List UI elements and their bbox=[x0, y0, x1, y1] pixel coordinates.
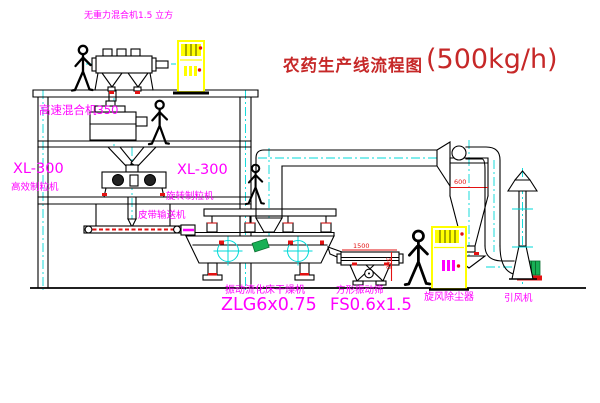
worker-figure-1 bbox=[72, 46, 93, 91]
title-capacity: (500kg/h) bbox=[426, 44, 558, 75]
sieve-length-dimension: 1500 bbox=[353, 243, 370, 250]
high-speed-mixer-label: 高速混合机350 bbox=[39, 105, 118, 117]
granulator bbox=[102, 172, 166, 197]
worker-figure-3 bbox=[246, 165, 264, 204]
diagram-title: 农药生产线流程图 (500kg/h) bbox=[283, 44, 558, 76]
square-sieve bbox=[337, 250, 403, 285]
title-text: 农药生产线流程图 bbox=[283, 52, 423, 76]
belt-conveyor-label: 皮带输送机 bbox=[138, 211, 186, 221]
control-cabinet-upper bbox=[173, 41, 209, 93]
gravity-free-mixer-label: 无重力混合机1.5 立方 bbox=[84, 12, 173, 21]
granulator-lower-model-label: XL-300 bbox=[177, 163, 228, 178]
worker-figure-2 bbox=[149, 101, 169, 144]
worker-figure-4 bbox=[405, 231, 430, 285]
dryer-model-label: ZLG6x0.75 bbox=[221, 297, 317, 315]
granulator-upper-name-label: 高效制粒机 bbox=[11, 183, 59, 193]
cyclone-dimension: 600 bbox=[454, 179, 466, 186]
granulator-lower-name-label: 旋转制粒机 bbox=[166, 192, 214, 202]
diagram-canvas: 农药生产线流程图 (500kg/h) 无重力混合机1.5 立方 高速混合机350… bbox=[0, 0, 600, 403]
sieve-model-label: FS0.6x1.5 bbox=[330, 297, 412, 314]
exhaust-duct bbox=[256, 142, 450, 232]
control-cabinet-ground bbox=[429, 227, 469, 290]
sieve-height-dimension: 340 bbox=[385, 257, 392, 269]
fan-label: 引风机 bbox=[504, 294, 533, 304]
granulator-upper-model-label: XL-300 bbox=[13, 162, 64, 177]
cyclone-label: 旋风除尘器 bbox=[424, 293, 474, 303]
gravity-free-mixer bbox=[92, 49, 168, 101]
